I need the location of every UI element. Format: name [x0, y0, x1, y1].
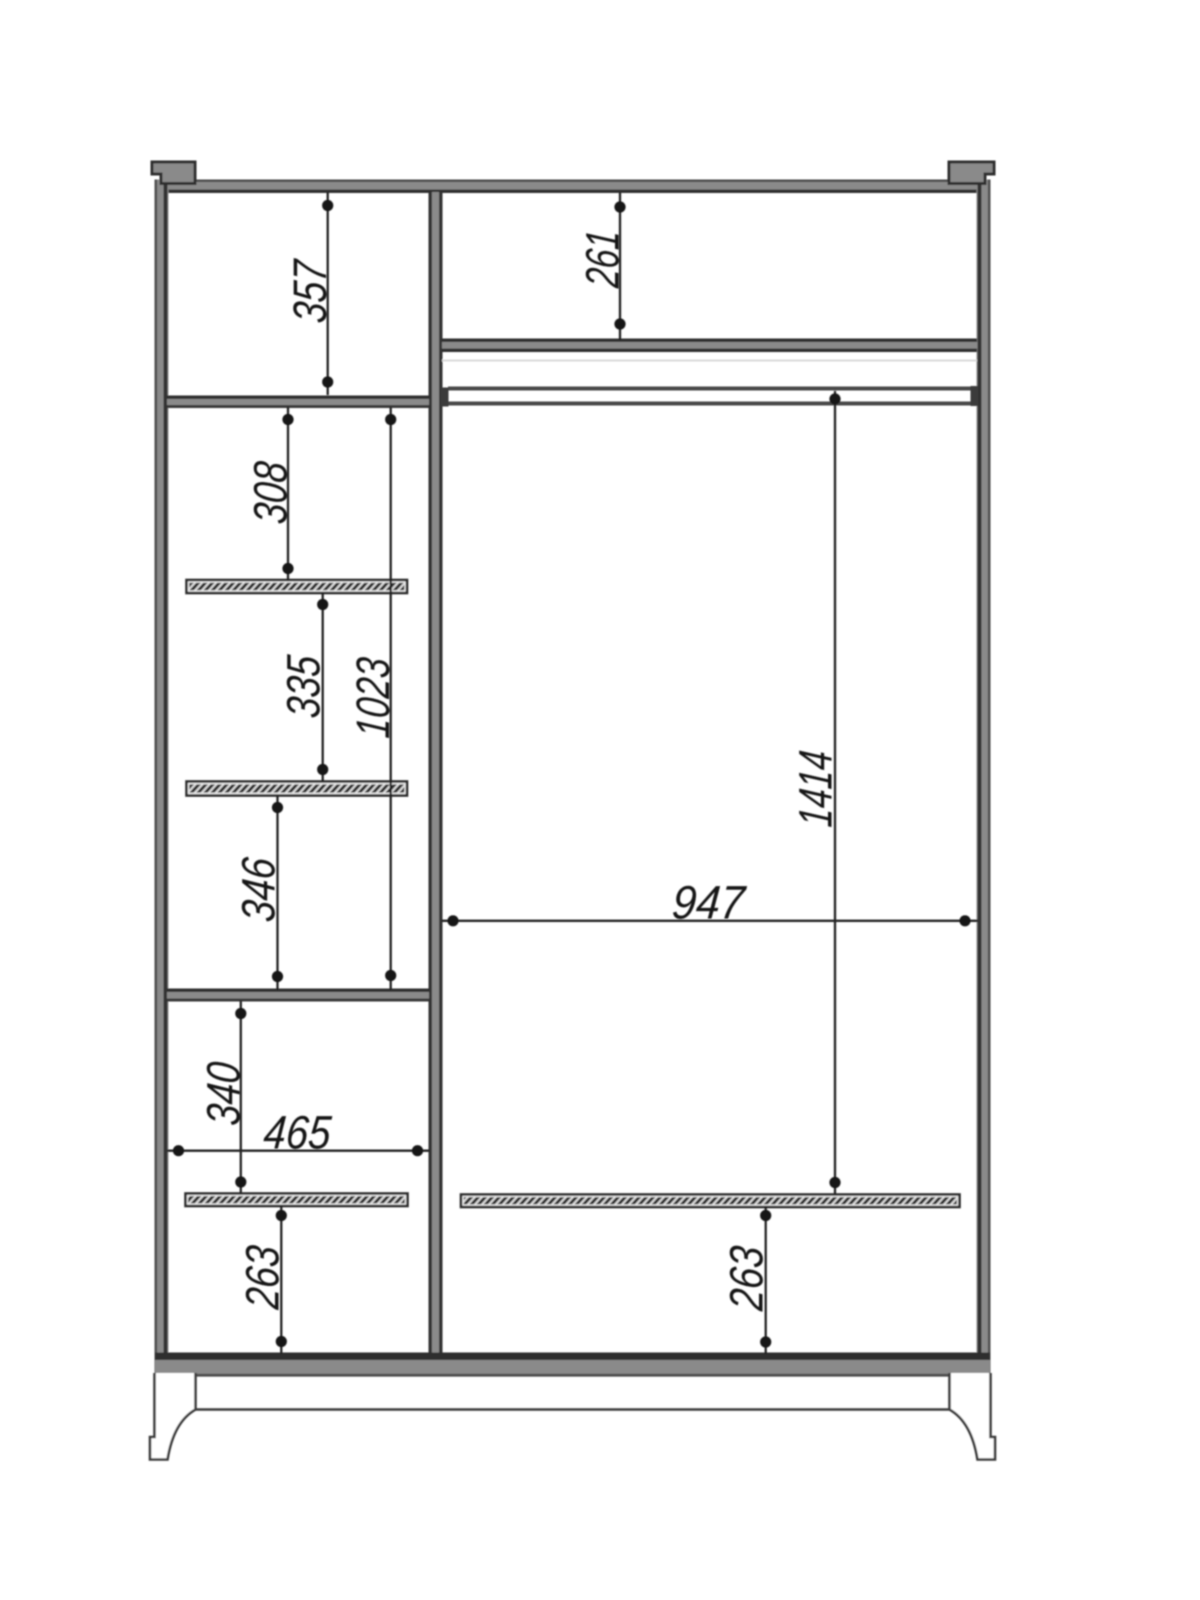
svg-text:340: 340	[196, 1060, 249, 1128]
svg-text:465: 465	[262, 1106, 334, 1159]
svg-text:947: 947	[670, 876, 748, 929]
svg-text:261: 261	[576, 228, 629, 290]
svg-text:335: 335	[277, 653, 330, 720]
svg-text:357: 357	[283, 257, 336, 325]
svg-text:263: 263	[235, 1243, 288, 1311]
svg-text:1023: 1023	[346, 655, 399, 740]
svg-text:1414: 1414	[789, 748, 842, 829]
svg-text:263: 263	[720, 1244, 773, 1313]
svg-text:308: 308	[244, 459, 297, 526]
svg-text:346: 346	[232, 855, 285, 924]
